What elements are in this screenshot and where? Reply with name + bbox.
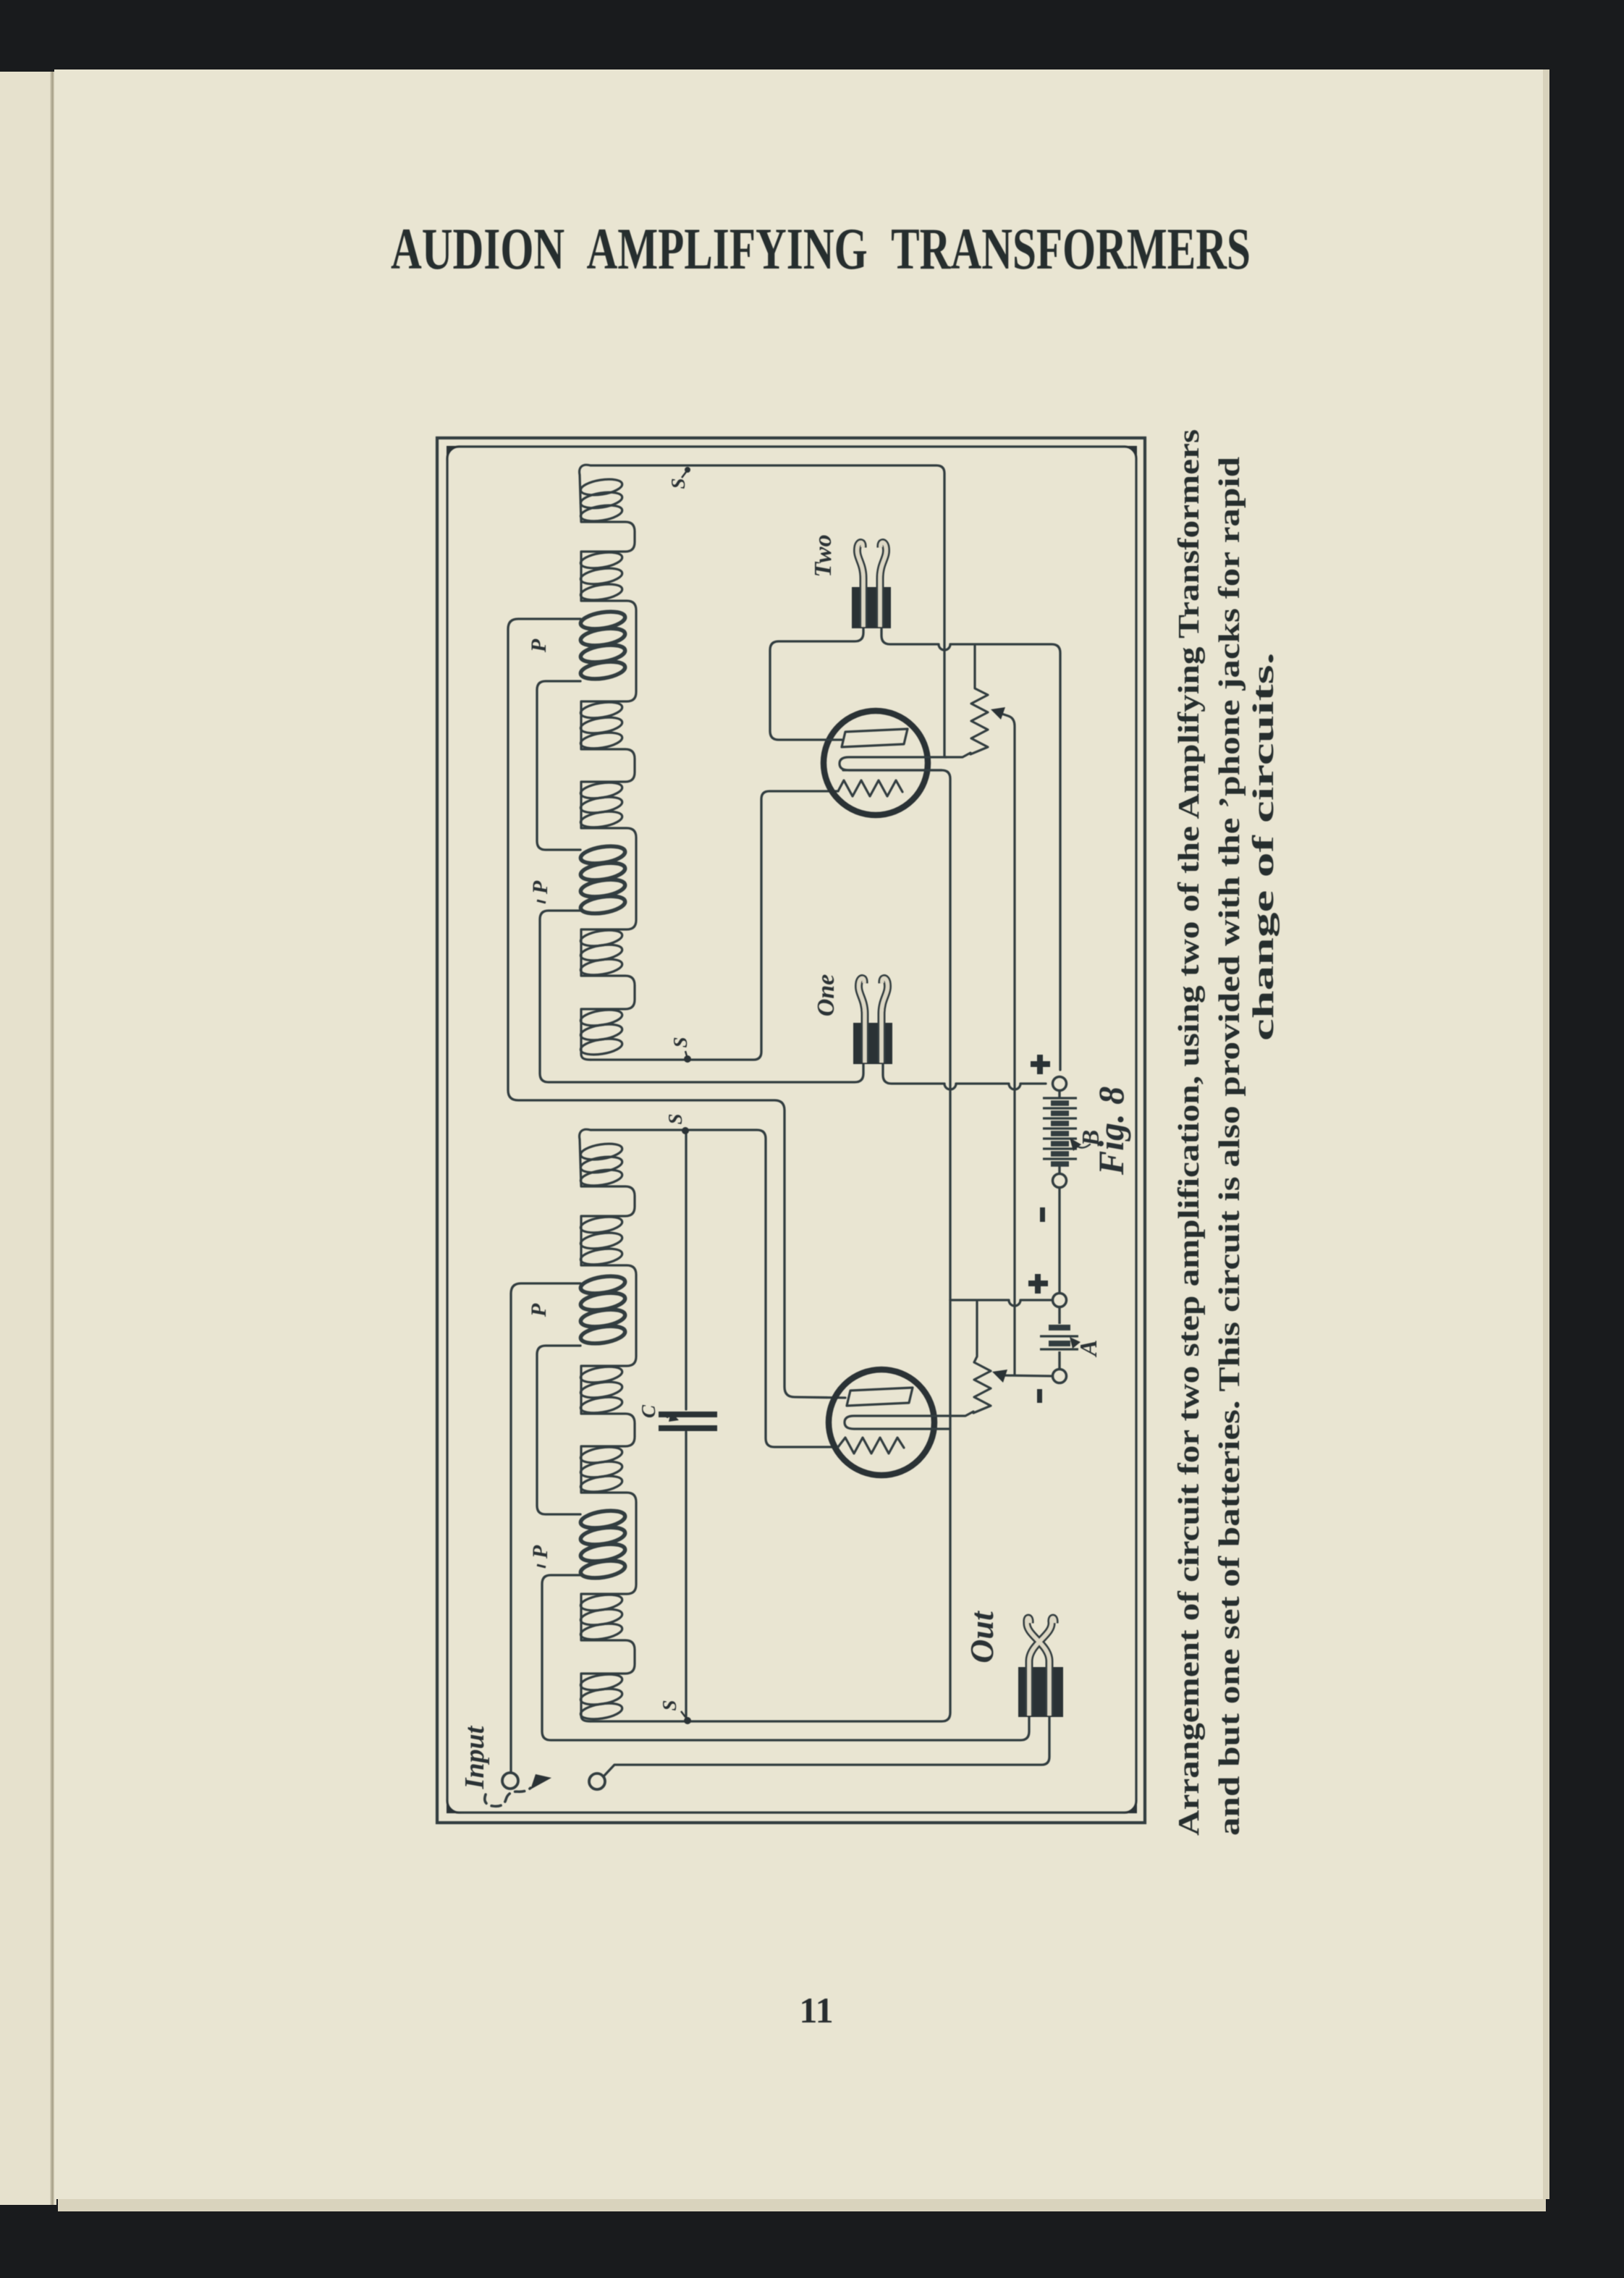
svg-text:S: S xyxy=(659,1700,680,1710)
svg-text:AUDION AMPLIFYING TRANSFORMERS: AUDION AMPLIFYING TRANSFORMERS xyxy=(391,216,1251,282)
svg-text:P: P xyxy=(528,1545,552,1559)
svg-text:S: S xyxy=(667,478,689,489)
svg-text:Input: Input xyxy=(460,1725,490,1789)
svg-text:S: S xyxy=(669,1037,691,1047)
svg-text:Out: Out xyxy=(963,1611,1000,1663)
svg-text:Two: Two xyxy=(810,534,837,577)
svg-text:Arrangement of circuit for two: Arrangement of circuit for two step ampl… xyxy=(1172,429,1205,1836)
svg-text:C: C xyxy=(638,1404,659,1418)
svg-text:One: One xyxy=(813,974,840,1017)
svg-text:Fig. 8: Fig. 8 xyxy=(1091,1087,1131,1176)
svg-text:P: P xyxy=(528,880,552,895)
svg-text:change of circuits.: change of circuits. xyxy=(1246,652,1280,1041)
svg-text:and but one set of batteries.: and but one set of batteries. This circu… xyxy=(1212,457,1246,1836)
svg-text:S: S xyxy=(664,1113,686,1124)
svg-text:P: P xyxy=(527,1303,551,1317)
svg-text:P: P xyxy=(527,638,551,653)
